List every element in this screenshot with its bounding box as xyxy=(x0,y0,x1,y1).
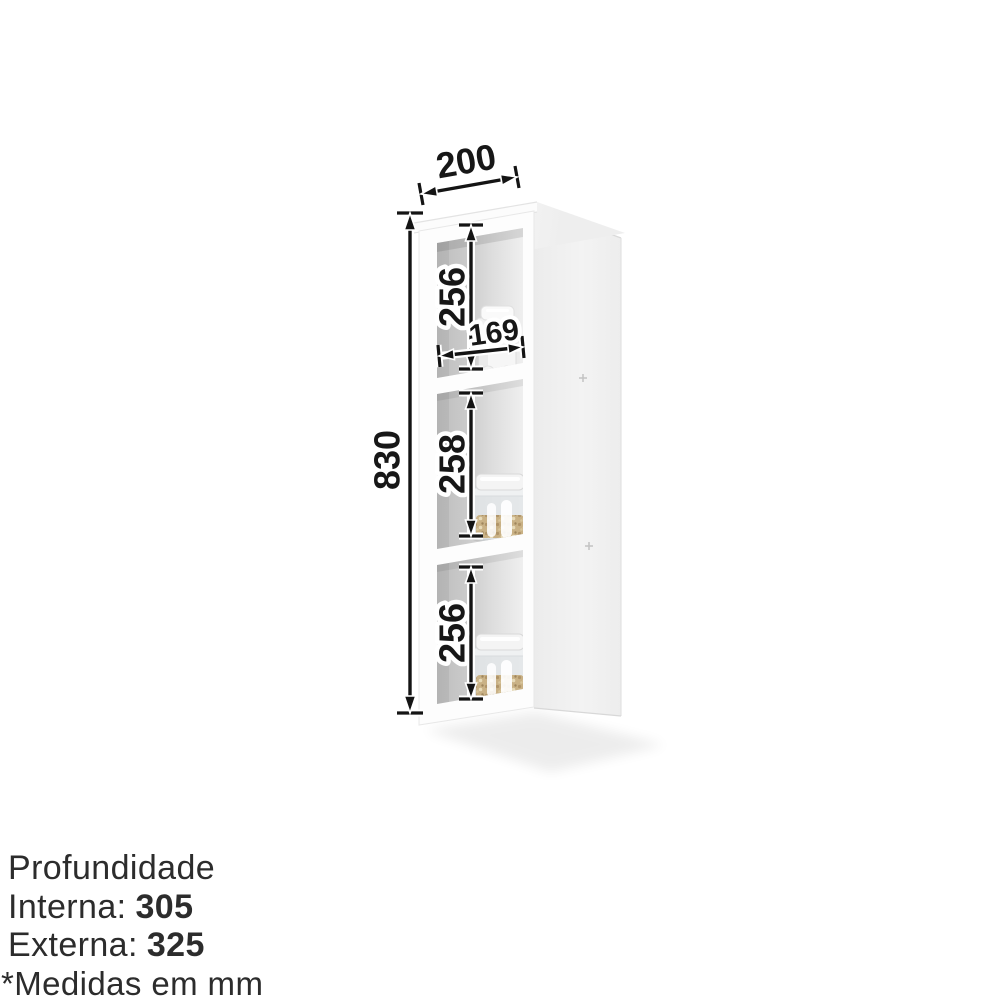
oats-fill xyxy=(476,515,524,538)
external-depth-value: 325 xyxy=(147,926,205,964)
glass-highlight xyxy=(501,500,512,538)
product-dimension-diagram: 200 830 256 xyxy=(0,0,1000,1000)
external-depth-label: Externa: xyxy=(8,926,138,964)
jar-lid-highlight xyxy=(480,477,520,481)
jar-lid xyxy=(476,474,524,490)
jar-lid-highlight xyxy=(486,309,509,312)
depth-title: Profundidade xyxy=(8,849,263,888)
glass-highlight xyxy=(487,503,496,537)
internal-depth-value: 305 xyxy=(136,888,194,926)
dimension-total-height: 830 xyxy=(367,213,424,713)
dim-label-compartment-top: 256 xyxy=(432,267,473,327)
measurements-footer: Profundidade Interna:305 Externa:325 *Me… xyxy=(8,849,263,1000)
dim-label-total-height: 830 xyxy=(367,430,408,490)
dim-label-inner-width: 169 xyxy=(467,313,521,353)
dim-label-compartment-middle: 258 xyxy=(432,434,473,494)
units-note: *Medidas em mm xyxy=(1,965,263,1000)
external-depth-line: Externa:325 xyxy=(8,926,263,965)
internal-depth-line: Interna:305 xyxy=(8,888,263,927)
jar-lid-highlight xyxy=(480,637,520,641)
cabinet-side-panel xyxy=(534,206,621,716)
glass-highlight xyxy=(487,663,496,697)
internal-depth-label: Interna: xyxy=(8,888,127,926)
dimension-top-width: 200 xyxy=(419,136,519,205)
cabinet-shadow xyxy=(425,712,665,772)
dim-label-compartment-bottom: 256 xyxy=(432,603,473,663)
jar-lid xyxy=(476,634,524,650)
